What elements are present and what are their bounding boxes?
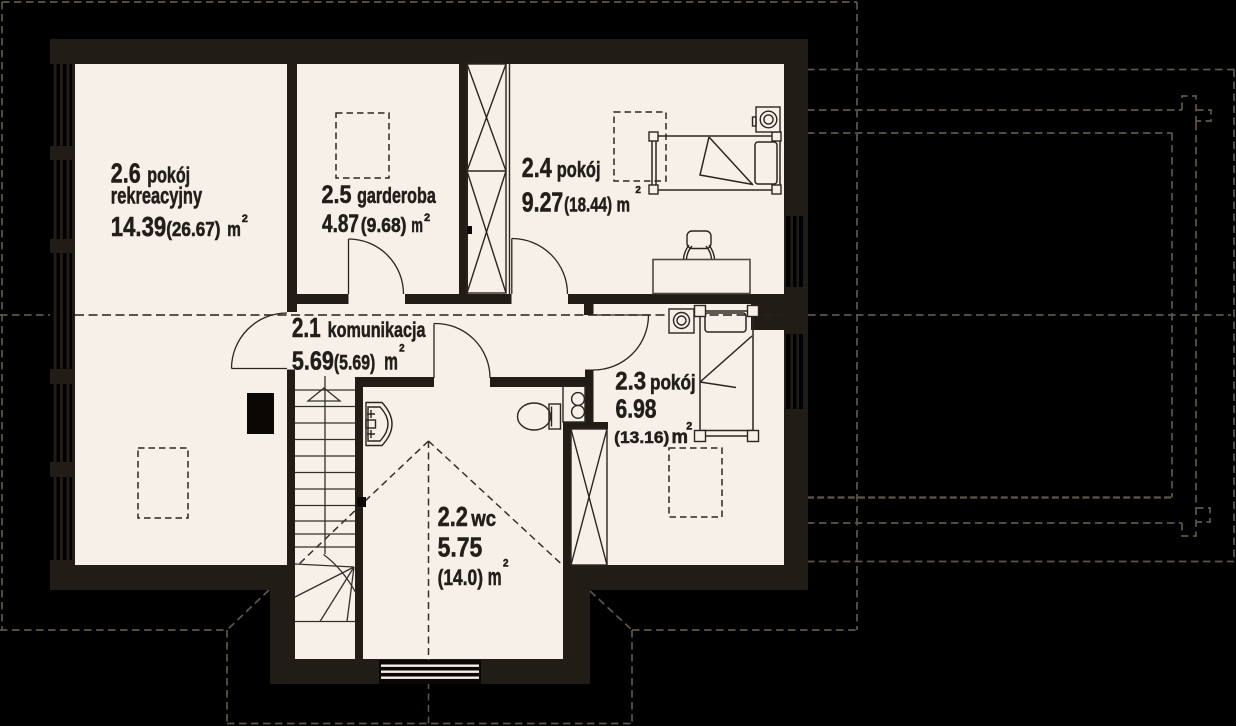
svg-text:rekreacyjny: rekreacyjny [111,183,202,209]
svg-text:m: m [384,349,398,376]
svg-text:pokój: pokój [557,157,601,182]
svg-text:2.2: 2.2 [438,501,468,532]
svg-text:2: 2 [686,421,692,433]
svg-text:komunikacja: komunikacja [328,319,426,342]
svg-text:5.75: 5.75 [438,531,483,562]
svg-text:wc: wc [470,506,496,531]
svg-text:(13.16): (13.16) [614,428,669,447]
svg-text:2.1: 2.1 [292,312,321,343]
svg-text:(5.69): (5.69) [334,351,375,374]
svg-text:m: m [617,194,631,216]
svg-text:2: 2 [503,558,509,570]
svg-text:pokój: pokój [650,371,696,394]
svg-text:4.87: 4.87 [322,210,359,238]
svg-text:m: m [411,215,423,237]
svg-text:14.39: 14.39 [111,211,166,242]
svg-text:5.69: 5.69 [292,346,334,376]
svg-text:(14.0): (14.0) [438,565,483,590]
svg-text:2.4: 2.4 [522,152,552,183]
svg-text:(9.68): (9.68) [361,215,407,237]
svg-text:2.3: 2.3 [615,367,646,395]
svg-text:9.27: 9.27 [522,186,564,217]
svg-text:garderoba: garderoba [357,183,436,208]
svg-text:2: 2 [242,213,248,225]
svg-text:2: 2 [424,212,430,224]
svg-text:m: m [227,219,241,241]
svg-text:2.5: 2.5 [322,181,352,209]
svg-text:m: m [488,564,502,591]
svg-text:2: 2 [635,185,641,196]
svg-text:6.98: 6.98 [616,395,657,423]
svg-text:(26.67): (26.67) [166,219,220,241]
svg-text:2: 2 [399,342,405,354]
svg-text:(18.44): (18.44) [564,194,612,216]
